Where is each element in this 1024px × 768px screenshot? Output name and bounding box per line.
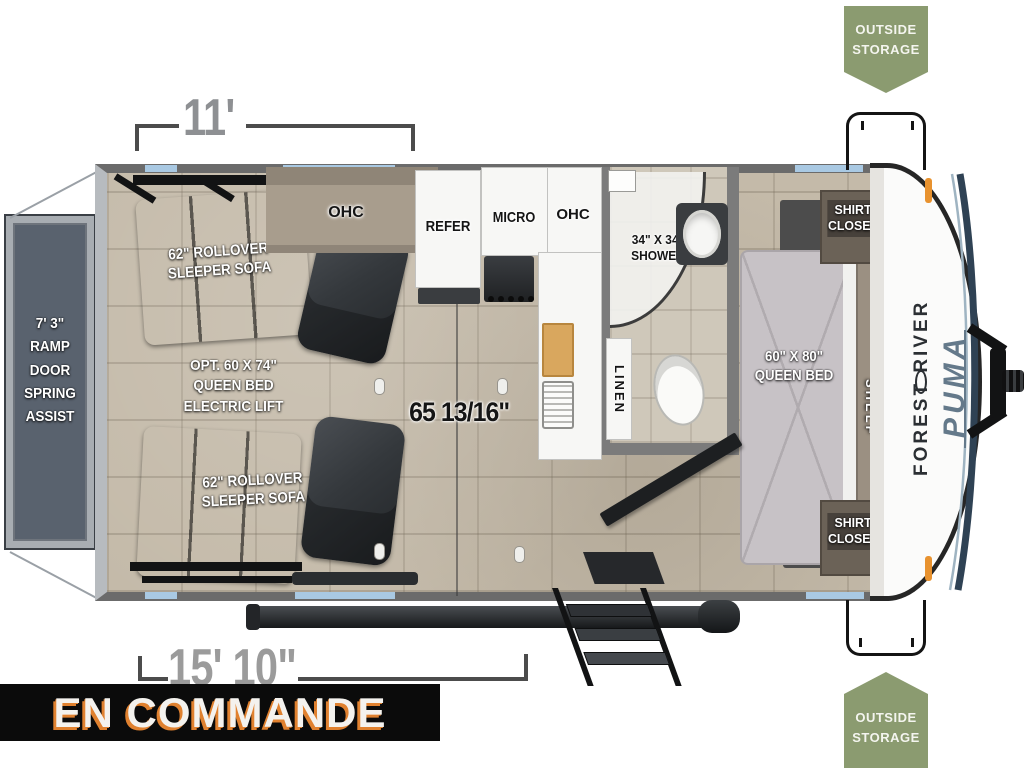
tie-down-anchor (514, 546, 525, 563)
entry-steps (552, 588, 684, 686)
window-strip (806, 592, 864, 599)
status-banner-label: EN COMMANDE (54, 689, 387, 736)
queen-bed-label: 60" X 80" QUEEN BED (748, 348, 840, 386)
outside-storage-badge-bottom-label: OUTSIDE STORAGE (844, 694, 928, 768)
brand-make-text: FOREST RIVER (910, 238, 934, 538)
window-strip (145, 165, 177, 172)
ramp-door-label: 7' 3" RAMP DOOR SPRING ASSIST (14, 312, 86, 428)
sofa-bottom-label: 62" ROLLOVER SLEEPER SOFA (185, 468, 322, 513)
dimension-top-tick (135, 124, 139, 151)
dimension-top-line (135, 124, 179, 128)
refrigerator-label: REFER (421, 218, 476, 237)
ramp-door: 7' 3" RAMP DOOR SPRING ASSIST (4, 214, 96, 550)
microwave-label: MICRO (488, 209, 541, 228)
window-strip (295, 592, 395, 599)
outline-tick (911, 121, 914, 130)
badge-point-down (844, 72, 928, 93)
outside-storage-badge-bottom: OUTSIDE STORAGE (844, 672, 928, 768)
dimension-top-line (246, 124, 415, 128)
cutting-board (542, 323, 574, 377)
awning-end-cap-right (698, 600, 740, 633)
outside-storage-badge-top-label: OUTSIDE STORAGE (844, 6, 928, 72)
hitch-jack-handle (1002, 370, 1024, 392)
storage-platform-outline-top (846, 112, 926, 170)
linen-cabinet: LINEN (606, 338, 632, 440)
sofa-track-rail-bottom (142, 576, 292, 583)
interior-width-dimension: 65 13/16" (404, 396, 514, 430)
brand-model-underline (964, 330, 966, 448)
outline-tick (911, 638, 914, 647)
ramp-hinge-line-bottom (10, 551, 97, 599)
window-strip (145, 592, 177, 599)
outline-tick (859, 638, 862, 647)
sofa-track-rail-bottom (130, 562, 302, 571)
ramp-hinge-line-top (10, 171, 97, 219)
recliner-chair-bottom (300, 415, 407, 567)
opt-queen-bed-label: OPT. 60 X 74" QUEEN BED ELECTRIC LIFT (164, 356, 304, 417)
shower-head (608, 170, 636, 192)
stove-burners (488, 296, 494, 302)
entry-step (583, 652, 670, 665)
ohc-kitchen-label: OHC (548, 206, 598, 225)
dimension-bottom-tick (524, 654, 528, 681)
tie-down-anchor (374, 378, 385, 395)
outline-tick (861, 121, 864, 130)
refrigerator-shelf (418, 288, 480, 304)
dimension-bottom-line (298, 677, 528, 681)
door-mat (583, 552, 665, 584)
tie-down-anchor (497, 378, 508, 395)
tie-down-anchor (374, 543, 385, 560)
entry-step (575, 628, 662, 641)
entry-step (566, 604, 653, 617)
clearance-light-top (925, 178, 932, 203)
ohc-living-label: OHC (316, 203, 376, 223)
bathroom-right-wall (727, 167, 739, 455)
storage-platform-outline-bottom (846, 600, 926, 656)
dimension-top-width: 11' (183, 88, 234, 148)
bathroom-sink-basin (683, 210, 721, 258)
dimension-top-tick (411, 124, 415, 151)
status-banner: EN COMMANDE (0, 684, 440, 741)
dimension-bottom-tick (138, 656, 142, 681)
threshold-rail (292, 572, 418, 585)
outside-storage-badge-top: OUTSIDE STORAGE (844, 6, 928, 93)
badge-point-up (844, 672, 928, 694)
dimension-bottom-line (138, 677, 168, 681)
linen-label: LINEN (607, 339, 631, 439)
awning-end-cap-left (246, 604, 260, 630)
floorplan-image: { "status_banner": { "label": "EN COMMAN… (0, 0, 1024, 768)
clearance-light-bottom (925, 556, 932, 581)
kitchen-sink (542, 381, 574, 429)
